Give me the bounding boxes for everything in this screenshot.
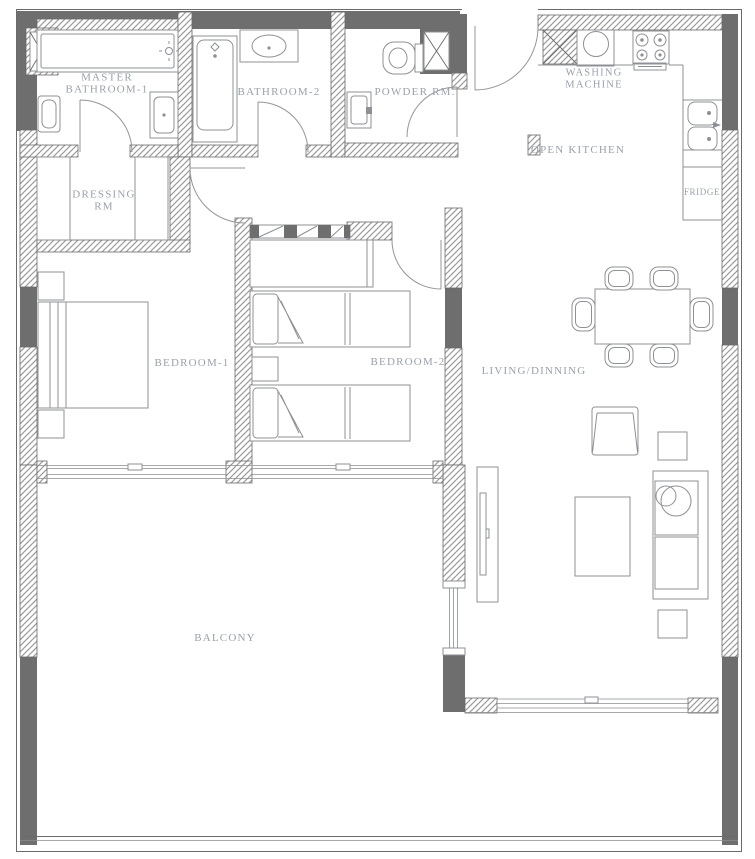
room-label-balcony: BALCONY	[194, 632, 256, 644]
toilet-master	[38, 96, 60, 132]
toilet-powder	[383, 42, 423, 74]
window	[443, 581, 465, 655]
dining-table	[595, 289, 690, 344]
door-bedroom-1	[190, 168, 245, 223]
side-table	[658, 610, 687, 638]
side-table	[658, 432, 687, 460]
tv-console	[477, 467, 498, 602]
stove	[633, 31, 669, 70]
nightstand	[38, 410, 64, 438]
sink-bathroom-2	[240, 30, 298, 62]
wardrobe	[250, 240, 373, 287]
door-entry	[475, 26, 538, 90]
room-label-open-kitchen: OPEN KITCHEN	[531, 144, 625, 156]
room-label-living-dining: LIVING/DINNING	[482, 365, 587, 377]
window	[465, 697, 718, 713]
balcony-railing	[20, 837, 738, 841]
floor-plan-canvas	[0, 0, 755, 859]
room-label-dressing-room: DRESSING RM	[72, 189, 135, 214]
floor-plan: MASTER BATHROOM-1 DRESSING RM BATHROOM-2…	[0, 0, 755, 859]
door-bedroom-2	[392, 240, 441, 289]
vanity-sink-master	[150, 92, 178, 138]
room-label-fridge: FRIDGE	[684, 187, 720, 197]
dressing-wardrobe	[135, 157, 168, 240]
coffee-table	[575, 497, 630, 576]
dining-chair	[572, 298, 595, 331]
door-bathroom-2	[258, 102, 308, 152]
room-label-bedroom-1: BEDROOM-1	[155, 357, 230, 369]
room-label-powder-room: POWDER RM.	[374, 86, 455, 98]
dining-chair	[690, 298, 713, 331]
kitchen-sink	[688, 102, 721, 150]
room-label-master-bathroom: MASTER BATHROOM-1	[66, 72, 149, 97]
shaft-column-icon	[424, 32, 449, 70]
room-label-washing-machine: WASHING MACHINE	[565, 67, 622, 91]
dining-chair	[605, 267, 633, 290]
door-master-bathroom	[80, 100, 132, 152]
twin-bed	[250, 291, 410, 347]
bathtub-2	[193, 36, 237, 142]
bathtub-master	[37, 30, 179, 72]
dining-chair	[605, 344, 633, 367]
sofa	[653, 471, 708, 599]
sink-powder	[347, 92, 372, 128]
double-bed	[38, 302, 148, 408]
twin-bed	[250, 385, 410, 441]
dressing-wardrobe	[37, 157, 70, 240]
wardrobe-sliding-doors	[250, 225, 350, 238]
dining-chair	[650, 344, 678, 367]
nightstand	[252, 357, 278, 381]
room-label-bedroom-2: BEDROOM-2	[371, 356, 446, 368]
washing-machine	[577, 30, 614, 66]
nightstand	[38, 272, 64, 300]
shaft-column-icon	[543, 30, 577, 64]
dining-chair	[650, 267, 678, 290]
armchair	[592, 407, 638, 455]
room-label-bathroom-2: BATHROOM-2	[238, 86, 321, 98]
